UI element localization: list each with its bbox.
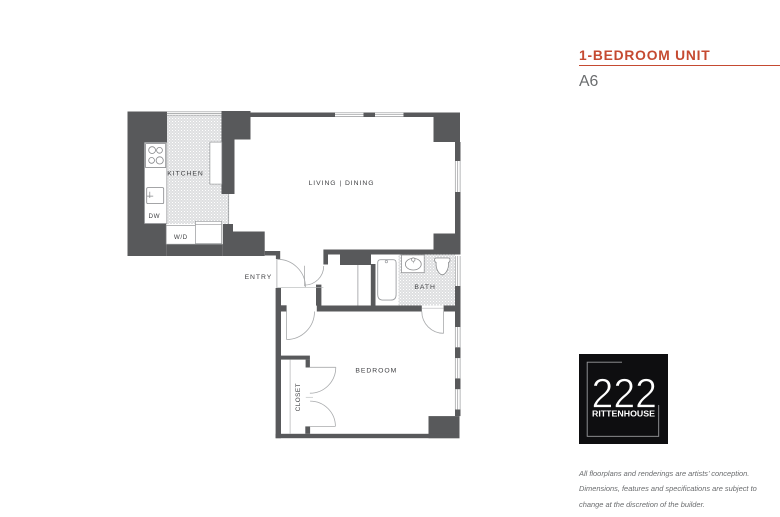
svg-text:RITTENHOUSE: RITTENHOUSE (592, 409, 655, 419)
